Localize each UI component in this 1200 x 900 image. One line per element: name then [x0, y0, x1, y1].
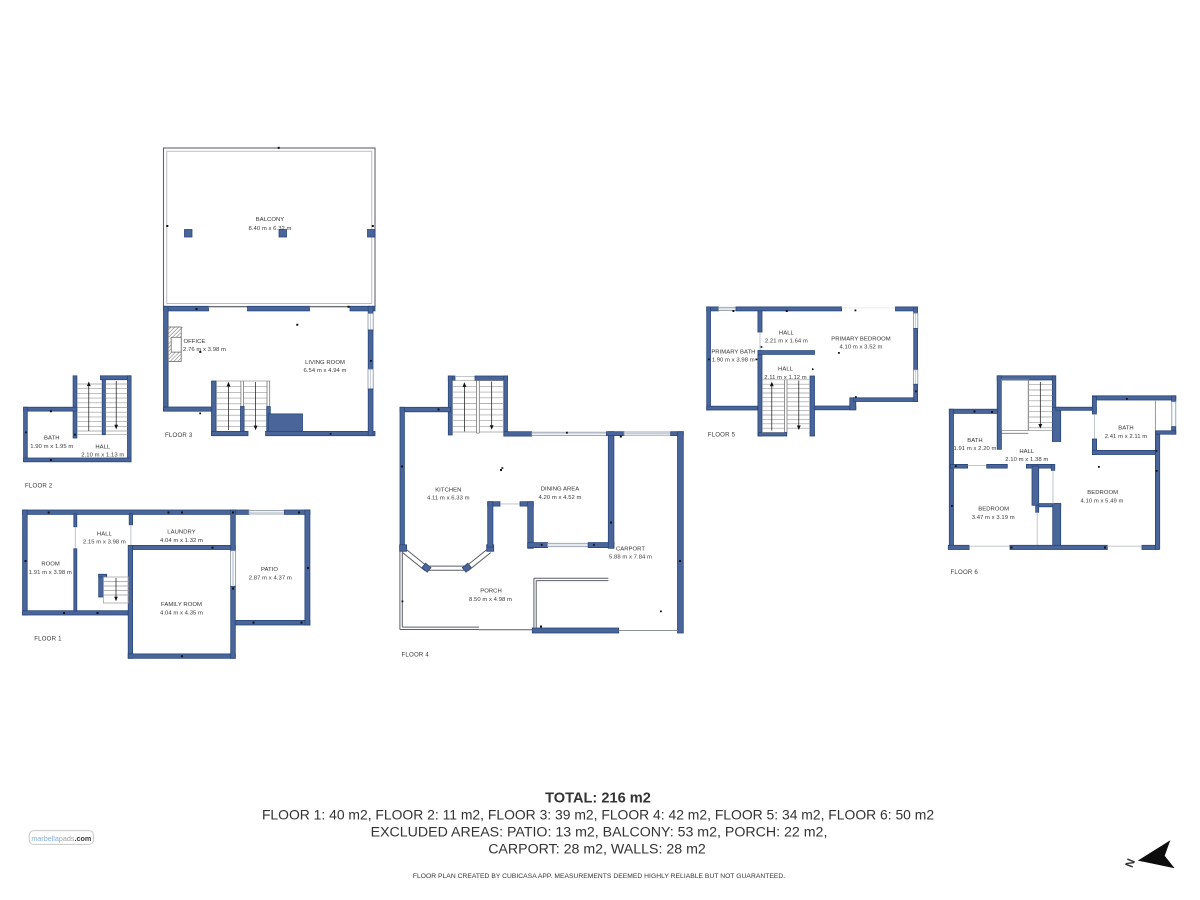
svg-text:4.11 m x 6.33 m: 4.11 m x 6.33 m [427, 496, 470, 502]
svg-text:FLOOR 5: FLOOR 5 [708, 431, 736, 438]
svg-text:6.54 m x 4.94 m: 6.54 m x 4.94 m [304, 368, 347, 374]
svg-text:2.87 m x 4.37 m: 2.87 m x 4.37 m [249, 576, 292, 582]
svg-text:KITCHEN: KITCHEN [435, 487, 461, 493]
svg-text:LAUNDRY: LAUNDRY [167, 530, 195, 536]
svg-text:HALL: HALL [778, 367, 794, 373]
svg-text:2.10 m x 1.13 m: 2.10 m x 1.13 m [81, 452, 124, 458]
svg-text:HALL: HALL [97, 532, 113, 538]
svg-text:FLOOR 1: 40 m2, FLOOR 2: 11 m2: FLOOR 1: 40 m2, FLOOR 2: 11 m2, FLOOR 3:… [262, 807, 934, 823]
svg-text:4.10 m x 5.49 m: 4.10 m x 5.49 m [1081, 498, 1124, 504]
svg-text:FLOOR 6: FLOOR 6 [951, 569, 979, 576]
svg-text:2.21 m x 1.64 m: 2.21 m x 1.64 m [765, 338, 808, 344]
svg-text:BATH: BATH [967, 438, 982, 444]
svg-text:1.91 m x 3.98 m: 1.91 m x 3.98 m [29, 570, 72, 576]
svg-text:8.40 m x 6.32 m: 8.40 m x 6.32 m [249, 226, 292, 232]
svg-text:FLOOR 1: FLOOR 1 [34, 636, 62, 643]
svg-text:CARPORT: CARPORT [616, 547, 645, 553]
svg-text:FLOOR 4: FLOOR 4 [402, 652, 430, 659]
svg-text:1.91 m x 2.20 m: 1.91 m x 2.20 m [954, 446, 997, 452]
svg-text:8.50 m x 4.98 m: 8.50 m x 4.98 m [469, 597, 512, 603]
svg-text:EXCLUDED AREAS: PATIO: 13 m2,: EXCLUDED AREAS: PATIO: 13 m2, BALCONY: 5… [371, 825, 828, 841]
svg-text:BATH: BATH [44, 436, 59, 442]
svg-text:FLOOR 3: FLOOR 3 [165, 432, 193, 439]
svg-text:4.20 m x 4.52 m: 4.20 m x 4.52 m [539, 495, 582, 501]
svg-text:1.90 m x 1.95 m: 1.90 m x 1.95 m [30, 444, 73, 450]
svg-text:PATIO: PATIO [261, 567, 278, 573]
svg-text:1.90 m x 3.98 m: 1.90 m x 3.98 m [712, 358, 755, 364]
svg-text:FLOOR PLAN CREATED BY CUBICASA: FLOOR PLAN CREATED BY CUBICASA APP. MEAS… [413, 873, 785, 880]
svg-text:2.10 m x 1.38 m: 2.10 m x 1.38 m [1005, 457, 1048, 463]
svg-text:FAMILY ROOM: FAMILY ROOM [161, 602, 202, 608]
svg-text:PRIMARY BATH: PRIMARY BATH [711, 350, 755, 356]
svg-text:OFFICE: OFFICE [184, 339, 206, 345]
svg-text:PRIMARY BEDROOM: PRIMARY BEDROOM [831, 337, 890, 343]
svg-text:PORCH: PORCH [480, 589, 502, 595]
svg-text:BEDROOM: BEDROOM [978, 507, 1009, 513]
svg-text:BEDROOM: BEDROOM [1087, 490, 1118, 496]
svg-text:FLOOR 2: FLOOR 2 [25, 483, 53, 490]
svg-text:5.88 m x 7.84 m: 5.88 m x 7.84 m [609, 555, 652, 561]
svg-text:BALCONY: BALCONY [256, 217, 285, 223]
svg-text:BATH: BATH [1118, 426, 1133, 432]
svg-text:2.41 m x 2.11 m: 2.41 m x 2.11 m [1105, 434, 1148, 440]
svg-text:HALL: HALL [779, 330, 795, 336]
svg-text:TOTAL: 216 m2: TOTAL: 216 m2 [545, 791, 651, 807]
svg-text:4.04 m x 1.32 m: 4.04 m x 1.32 m [160, 538, 203, 544]
svg-text:2.15 m x 3.98 m: 2.15 m x 3.98 m [83, 540, 126, 546]
svg-text:LIVING ROOM: LIVING ROOM [305, 360, 345, 366]
svg-text:3.47 m x 3.19 m: 3.47 m x 3.19 m [972, 515, 1015, 521]
svg-text:4.04 m x 4.35 m: 4.04 m x 4.35 m [160, 611, 203, 617]
svg-text:DINING AREA: DINING AREA [541, 486, 580, 492]
svg-text:marbellapads.com: marbellapads.com [31, 834, 91, 843]
svg-text:CARPORT: 28 m2, WALLS: 28 m2: CARPORT: 28 m2, WALLS: 28 m2 [488, 842, 706, 858]
svg-text:ROOM: ROOM [41, 562, 60, 568]
svg-text:HALL: HALL [1019, 449, 1035, 455]
svg-text:4.10 m x 3.52 m: 4.10 m x 3.52 m [840, 345, 883, 351]
svg-text:HALL: HALL [95, 444, 111, 450]
svg-text:2.76 m x 3.98 m: 2.76 m x 3.98 m [183, 347, 226, 353]
svg-text:2.11 m x 1.12 m: 2.11 m x 1.12 m [764, 375, 807, 381]
